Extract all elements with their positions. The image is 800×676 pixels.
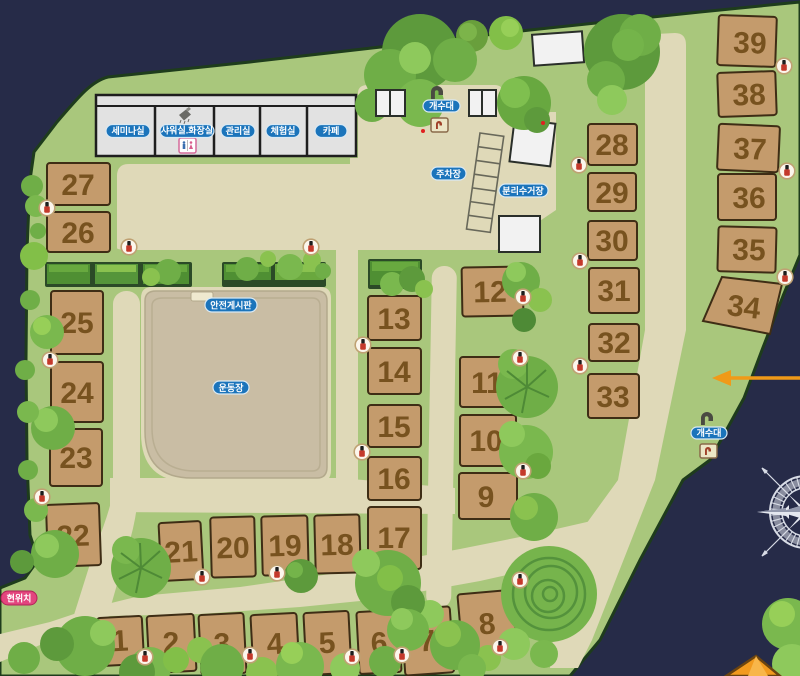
svg-text:26: 26 [61, 217, 94, 250]
svg-text:14: 14 [377, 356, 411, 389]
svg-text:8: 8 [477, 607, 497, 641]
svg-text:33: 33 [596, 381, 629, 414]
svg-text:29: 29 [595, 177, 628, 210]
svg-text:34: 34 [725, 289, 762, 326]
svg-text:31: 31 [597, 275, 630, 308]
svg-text:37: 37 [733, 132, 768, 166]
svg-text:25: 25 [60, 307, 93, 340]
svg-text:24: 24 [60, 377, 94, 410]
svg-text:15: 15 [377, 411, 410, 444]
svg-text:36: 36 [732, 182, 765, 215]
svg-text:18: 18 [320, 529, 354, 563]
svg-text:개수대: 개수대 [429, 100, 454, 111]
svg-text:19: 19 [268, 530, 302, 564]
svg-text:카페: 카페 [323, 125, 340, 136]
svg-text:분리수거장: 분리수거장 [502, 185, 544, 196]
svg-text:32: 32 [597, 327, 630, 360]
svg-text:10: 10 [469, 425, 502, 458]
svg-text:28: 28 [595, 129, 628, 162]
svg-text:개수대: 개수대 [697, 427, 722, 438]
svg-text:안전게시판: 안전게시판 [210, 300, 252, 311]
svg-text:20: 20 [216, 532, 250, 566]
svg-text:35: 35 [732, 234, 766, 268]
svg-text:17: 17 [377, 522, 410, 555]
svg-text:관리실: 관리실 [226, 125, 251, 136]
svg-text:39: 39 [733, 27, 768, 61]
svg-text:주차장: 주차장 [436, 168, 462, 179]
svg-text:38: 38 [732, 78, 767, 112]
svg-text:현위치: 현위치 [7, 593, 32, 604]
svg-text:샤워실.화장실: 샤워실.화장실 [161, 125, 213, 136]
svg-text:운동장: 운동장 [219, 382, 245, 393]
svg-text:16: 16 [377, 463, 410, 496]
svg-text:체험실: 체험실 [271, 125, 296, 136]
svg-text:13: 13 [377, 303, 410, 336]
svg-text:세미나실: 세미나실 [111, 125, 144, 136]
svg-text:30: 30 [595, 225, 628, 258]
svg-text:12: 12 [473, 276, 507, 310]
svg-text:9: 9 [478, 481, 495, 514]
svg-text:23: 23 [59, 442, 92, 475]
svg-text:27: 27 [61, 169, 94, 202]
